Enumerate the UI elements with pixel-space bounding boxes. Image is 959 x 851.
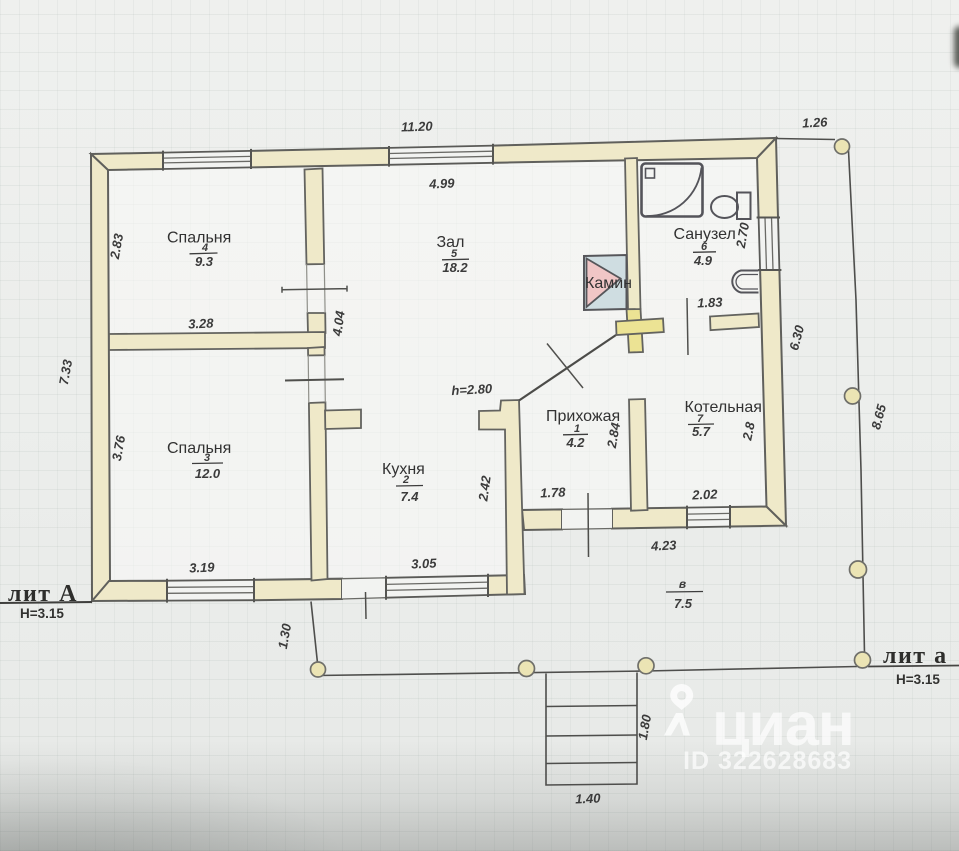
svg-text:лит а: лит а xyxy=(883,643,948,669)
svg-text:4.2: 4.2 xyxy=(565,435,585,450)
svg-text:6.30: 6.30 xyxy=(786,323,807,352)
svg-text:Котельная: Котельная xyxy=(685,399,762,416)
svg-text:Камин: Камин xyxy=(585,275,632,292)
svg-text:лит А: лит А xyxy=(8,581,78,607)
svg-text:4.99: 4.99 xyxy=(428,176,456,192)
svg-text:1.26: 1.26 xyxy=(802,114,829,130)
svg-text:1.30: 1.30 xyxy=(275,622,294,650)
svg-text:18.2: 18.2 xyxy=(442,260,468,275)
svg-text:3.28: 3.28 xyxy=(188,316,215,332)
svg-text:в: в xyxy=(679,577,686,591)
svg-text:ID 322628683: ID 322628683 xyxy=(683,747,852,775)
svg-text:12.0: 12.0 xyxy=(195,466,221,481)
svg-text:4.9: 4.9 xyxy=(693,253,713,268)
svg-text:8.65: 8.65 xyxy=(868,402,889,431)
svg-text:9.3: 9.3 xyxy=(195,254,214,269)
svg-text:Спальня: Спальня xyxy=(167,440,231,457)
svg-text:7.33: 7.33 xyxy=(56,358,75,386)
svg-text:1.83: 1.83 xyxy=(697,295,724,311)
svg-text:3.19: 3.19 xyxy=(189,560,216,576)
svg-text:1.40: 1.40 xyxy=(575,791,602,807)
svg-text:7.5: 7.5 xyxy=(674,596,693,611)
svg-text:7.4: 7.4 xyxy=(400,489,419,504)
svg-text:Спальня: Спальня xyxy=(167,230,231,247)
svg-text:Кухня: Кухня xyxy=(382,461,425,478)
svg-text:4.23: 4.23 xyxy=(650,537,678,553)
svg-text:h=2.80: h=2.80 xyxy=(451,381,493,398)
svg-text:1.80: 1.80 xyxy=(635,713,654,741)
svg-text:Прихожая: Прихожая xyxy=(546,408,620,425)
svg-text:5.7: 5.7 xyxy=(692,424,711,439)
svg-text:1.78: 1.78 xyxy=(540,485,567,501)
svg-text:11.20: 11.20 xyxy=(401,118,434,134)
svg-text:Н=3.15: Н=3.15 xyxy=(896,672,940,687)
svg-text:Санузел: Санузел xyxy=(674,226,736,243)
svg-text:Н=3.15: Н=3.15 xyxy=(20,606,64,621)
svg-text:Зал: Зал xyxy=(437,234,465,251)
svg-text:2.02: 2.02 xyxy=(691,487,719,503)
svg-text:3.05: 3.05 xyxy=(411,556,438,572)
